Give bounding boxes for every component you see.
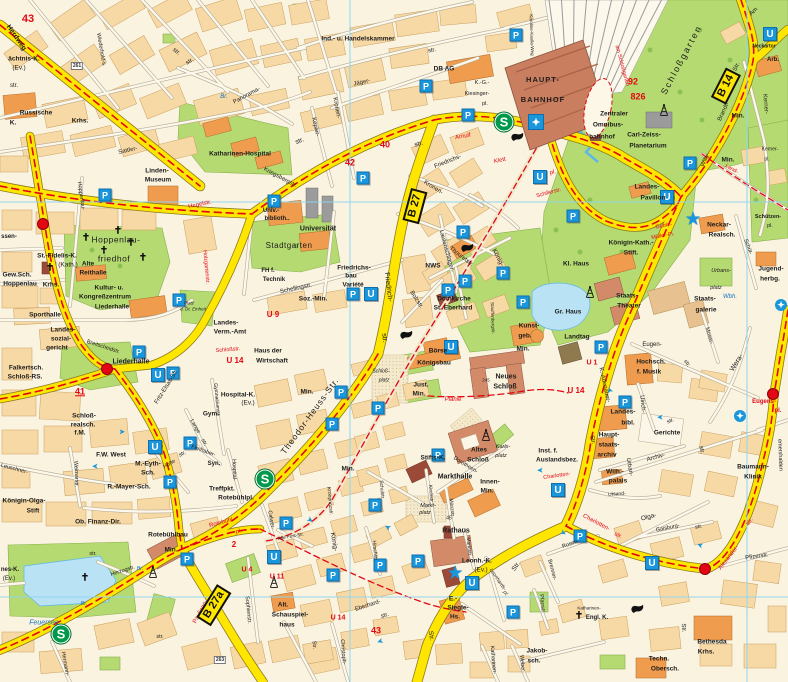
building-block [14,307,51,325]
tram-route-dashes [428,390,568,397]
building-block [389,85,428,111]
building-block [2,348,32,380]
building-block [2,468,30,488]
building-block [306,188,318,218]
building-block [449,158,482,188]
building-block [385,454,408,472]
building-block [625,353,654,385]
building-block [558,342,582,365]
building-block [94,619,134,650]
building-block [599,616,630,640]
building-block [316,553,346,577]
building-block [744,644,776,668]
city-map[interactable]: PPPPPPPPPPPPPPPPPPPPPPPPPPPPPPPPPUUUUUUU… [0,0,788,682]
building-block [256,419,294,450]
building-block [351,400,376,419]
building-block [704,471,738,497]
building-block [468,489,501,517]
building-block [98,0,145,30]
building-block [470,367,489,399]
building-block [373,616,399,636]
building-block [89,418,129,447]
building-block [336,587,368,612]
building-block [182,638,223,670]
building-block [2,252,32,272]
building-block [48,0,96,41]
building-block [768,606,786,632]
building-block [294,369,328,395]
street [194,444,220,464]
building-block [268,497,302,524]
building-block [0,156,28,172]
building-block [485,32,517,52]
building-block [75,265,106,282]
building-block [2,500,42,522]
building-block [2,210,32,230]
building-block [80,208,118,230]
building-block [383,422,406,440]
building-block [402,296,434,328]
building-block [506,363,525,395]
building-block [756,252,776,266]
building-block [137,612,177,646]
building-block [2,286,38,308]
building-block [313,289,348,312]
building-block [700,644,732,666]
building-block [646,112,672,128]
building-block [341,628,370,650]
building-block [558,599,586,623]
building-block [658,582,689,607]
building-block [636,658,666,678]
building-block [402,558,431,583]
building-block [299,230,331,251]
building-block [282,564,316,591]
building-block [254,379,292,408]
building-block [442,566,460,587]
building-block [720,580,757,608]
street [228,450,242,502]
building-block [694,616,732,640]
building-block [122,210,156,230]
building-block [271,592,295,612]
building-block [44,426,82,452]
building-block [598,559,628,583]
street [212,380,224,454]
building-block [753,560,782,583]
building-block [699,214,725,234]
building-block [361,498,384,516]
building-block [450,127,484,154]
building-block [649,626,681,651]
building-block [322,196,333,222]
building-block [638,413,683,447]
building-block [39,391,80,421]
building-block [446,54,493,83]
kunstgebaeude-dome [531,330,544,343]
building-block [330,515,357,537]
map-base-layer [0,0,788,682]
building-block [658,469,693,496]
street [520,642,604,662]
building-block [506,629,529,648]
building-block [92,502,132,524]
building-block [300,599,334,627]
street [702,312,718,362]
building-block [183,216,216,254]
building-block [2,430,38,454]
building-block [137,497,171,520]
building-block [435,643,462,665]
